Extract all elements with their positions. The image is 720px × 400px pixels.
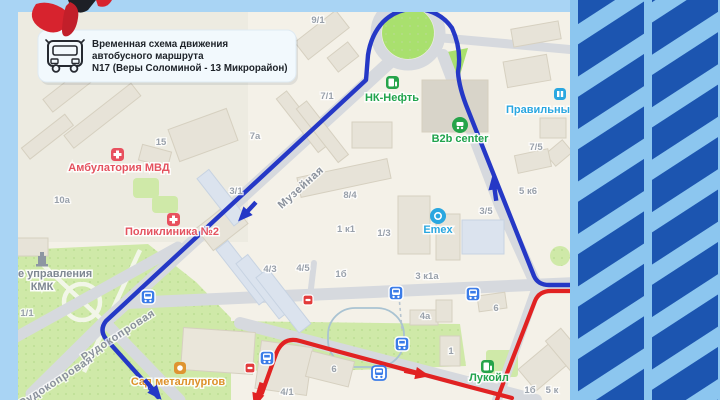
poi-label-pravilny: Правильны [506, 104, 570, 116]
svg-text:9/1: 9/1 [311, 15, 325, 26]
callout-line2: автобусного маршрута [92, 51, 204, 62]
map-canvas: Музейная Рудокопровая Рудокопровая НК-Не… [0, 0, 720, 400]
svg-text:1/3: 1/3 [377, 228, 390, 239]
stripe-column-right [652, 0, 718, 400]
svg-text:5 к: 5 к [546, 385, 559, 396]
poi-label-b2b-center: B2b center [432, 133, 490, 145]
callout-line1: Временная схема движения [92, 39, 228, 50]
striped-side-panel [570, 0, 720, 400]
poi-label-ambulatoria: Амбулатория МВД [68, 162, 170, 174]
svg-text:3/1: 3/1 [229, 186, 243, 197]
store-icon [554, 88, 566, 100]
medical-cross-icon [167, 213, 180, 226]
closed-stop-icon [245, 363, 255, 373]
svg-text:6: 6 [493, 303, 498, 314]
poi-label-kmk-line1: е управления [18, 268, 92, 280]
svg-text:3 к1а: 3 к1а [415, 271, 439, 282]
bus-stop-outline-icon [372, 366, 386, 380]
svg-text:1б: 1б [335, 269, 346, 280]
bus-stop-icon [389, 286, 403, 300]
svg-text:8/4: 8/4 [343, 190, 357, 201]
svg-text:1/1: 1/1 [20, 308, 34, 319]
stripe-column-left [578, 0, 644, 400]
svg-text:1б: 1б [524, 385, 535, 396]
svg-text:5 к6: 5 к6 [519, 186, 537, 197]
poi-label-lukoil: Лукойл [469, 372, 509, 384]
svg-text:4а: 4а [420, 311, 431, 322]
bus-stop-icon [260, 351, 274, 365]
attraction-icon [174, 362, 186, 374]
bus-stop-icon [395, 337, 409, 351]
svg-text:1 к1: 1 к1 [337, 224, 356, 235]
route-callout: Временная схема движения автобусного мар… [38, 30, 298, 85]
poi-label-nk-neft: НК-Нефть [365, 92, 419, 104]
shopping-cart-icon [452, 117, 468, 133]
bus-stop-icon [141, 290, 155, 304]
poi-label-emex: Emex [423, 224, 453, 236]
poi-label-poliklinika: Поликлиника №2 [125, 226, 219, 238]
svg-text:4/3: 4/3 [263, 264, 276, 275]
svg-text:15: 15 [156, 137, 167, 148]
emex-brand-icon [430, 208, 446, 224]
svg-text:3/5: 3/5 [479, 206, 493, 217]
closed-stop-icon [303, 295, 313, 305]
svg-text:4/1: 4/1 [280, 387, 294, 398]
callout-line3: N17 (Веры Соломиной - 13 Микрорайон) [92, 63, 288, 74]
fuel-station-icon [386, 76, 399, 89]
svg-text:4/5: 4/5 [296, 263, 310, 274]
svg-text:10а: 10а [54, 195, 71, 206]
svg-text:7/5: 7/5 [529, 142, 543, 153]
svg-text:1: 1 [448, 346, 454, 357]
svg-text:7/1: 7/1 [320, 91, 334, 102]
svg-text:6: 6 [331, 364, 336, 375]
bus-stop-icon [466, 287, 480, 301]
svg-text:7а: 7а [250, 131, 261, 142]
bus-route-scheme-poster: Музейная Рудокопровая Рудокопровая НК-Не… [0, 0, 720, 400]
poi-label-kmk-line2: КМК [31, 281, 54, 293]
medical-cross-icon [111, 148, 124, 161]
